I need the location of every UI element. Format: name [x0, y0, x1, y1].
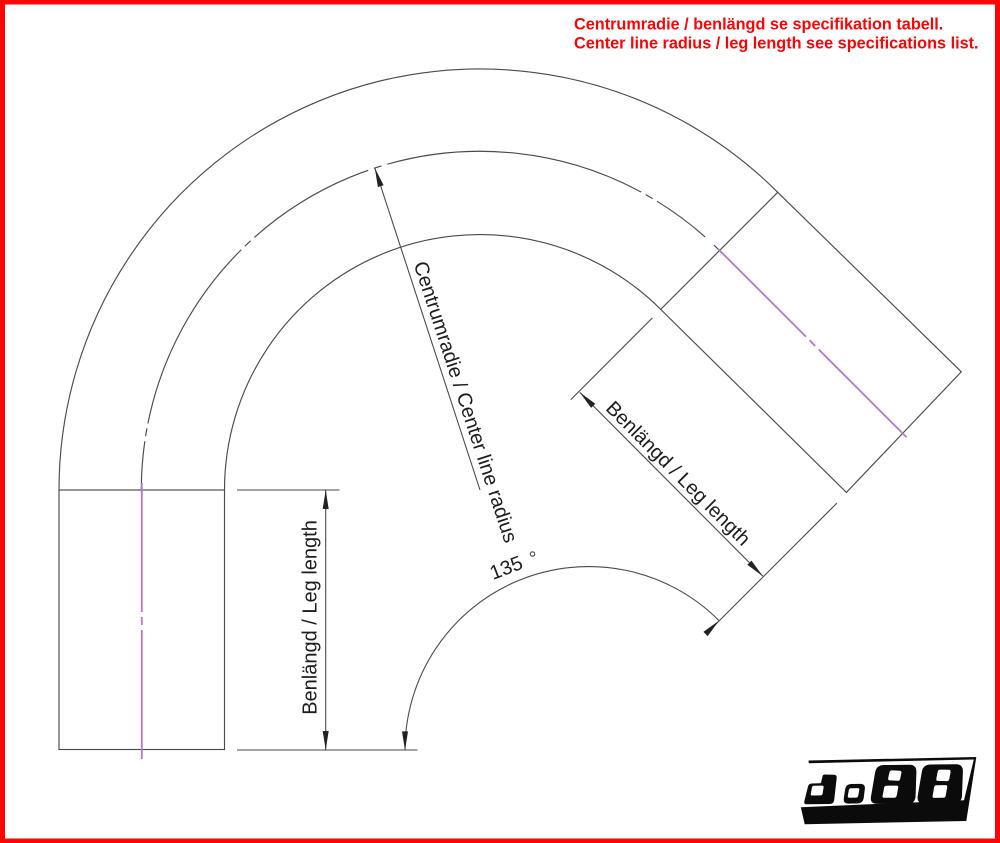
svg-text:Benlängd / Leg length: Benlängd / Leg length	[300, 520, 322, 715]
svg-text:Center line radius / leg lengt: Center line radius / leg length see spec…	[574, 34, 979, 52]
svg-text:Centrumradie / benlängd se spe: Centrumradie / benlängd se specifikation…	[574, 16, 943, 34]
